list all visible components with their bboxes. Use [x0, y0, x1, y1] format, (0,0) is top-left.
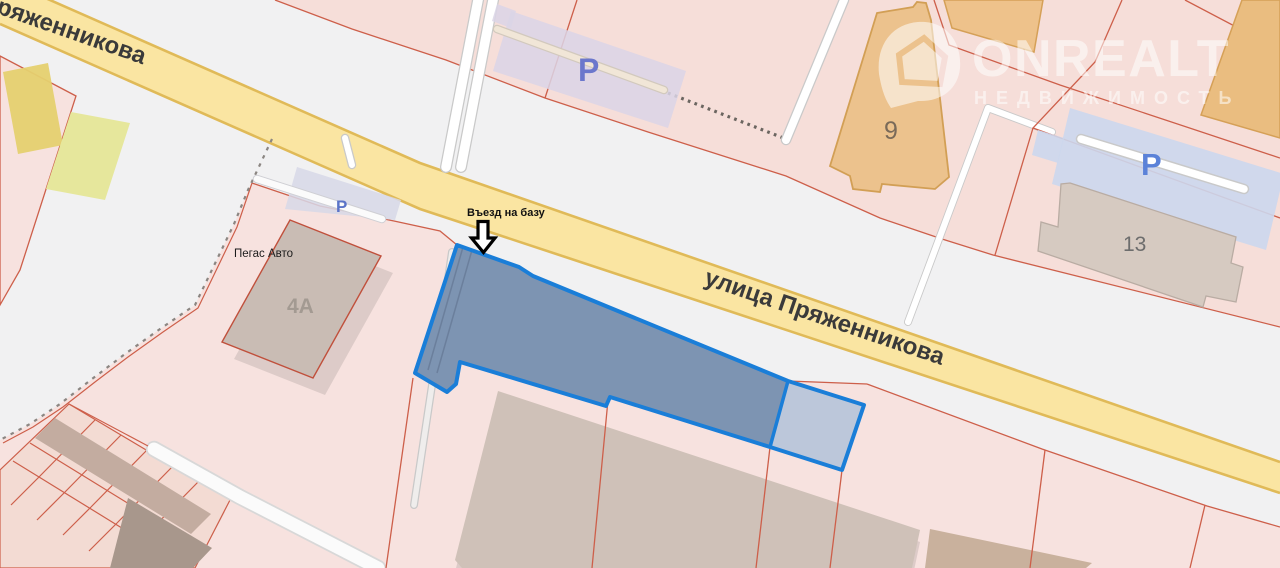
svg-text:4A: 4A — [287, 295, 314, 318]
svg-text:P: P — [336, 197, 347, 216]
svg-text:P: P — [1141, 147, 1162, 182]
svg-text:Пегас Авто: Пегас Авто — [234, 248, 293, 260]
svg-text:ONREALT: ONREALT — [972, 30, 1230, 88]
svg-text:13: 13 — [1123, 233, 1146, 256]
svg-text:Въезд на базу: Въезд на базу — [467, 207, 546, 219]
svg-text:9: 9 — [884, 117, 898, 145]
svg-text:НЕДВИЖИМОСТЬ: НЕДВИЖИМОСТЬ — [974, 88, 1240, 108]
svg-text:P: P — [578, 52, 599, 88]
